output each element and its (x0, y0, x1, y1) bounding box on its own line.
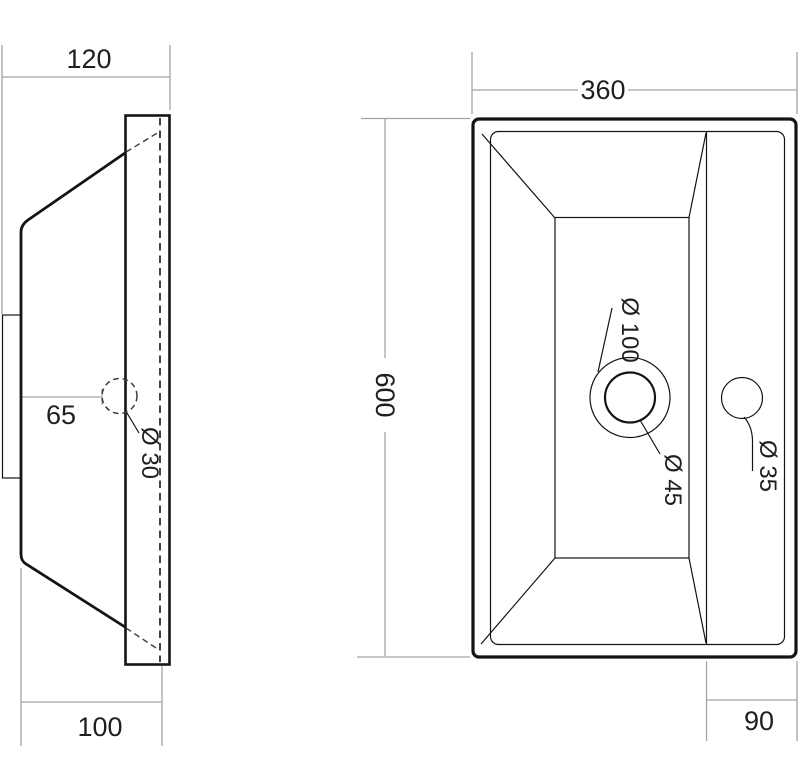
side-profile-view: 120 100 65 (2, 44, 170, 746)
side-view-back-panel (126, 116, 170, 665)
dim-65: 65 (22, 389, 102, 430)
sink-dimension-drawing: 120 100 65 (0, 0, 800, 776)
side-view-bowl-profile (21, 153, 125, 627)
dim-360: 360 (472, 52, 797, 114)
dim-120-label: 120 (66, 44, 111, 74)
dim-600: 600 (357, 118, 470, 657)
technical-drawing-canvas: 120 100 65 (0, 0, 800, 776)
top-view-outer-body (473, 119, 796, 657)
dim-90: 90 (707, 661, 798, 741)
dim-600-label: 600 (370, 372, 400, 417)
side-view-bracket (3, 315, 22, 478)
dim-65-label: 65 (46, 400, 76, 430)
dim-90-label: 90 (744, 706, 774, 736)
dim-100-label: 100 (77, 712, 122, 742)
dim-360-label: 360 (580, 75, 625, 105)
top-plan-view: 360 600 90 (357, 52, 797, 741)
dia35-label: Ø 35 (754, 440, 781, 492)
dia30-label: Ø 30 (136, 427, 163, 479)
dia45-label: Ø 45 (659, 454, 686, 506)
dia100-label: Ø 100 (616, 297, 643, 362)
